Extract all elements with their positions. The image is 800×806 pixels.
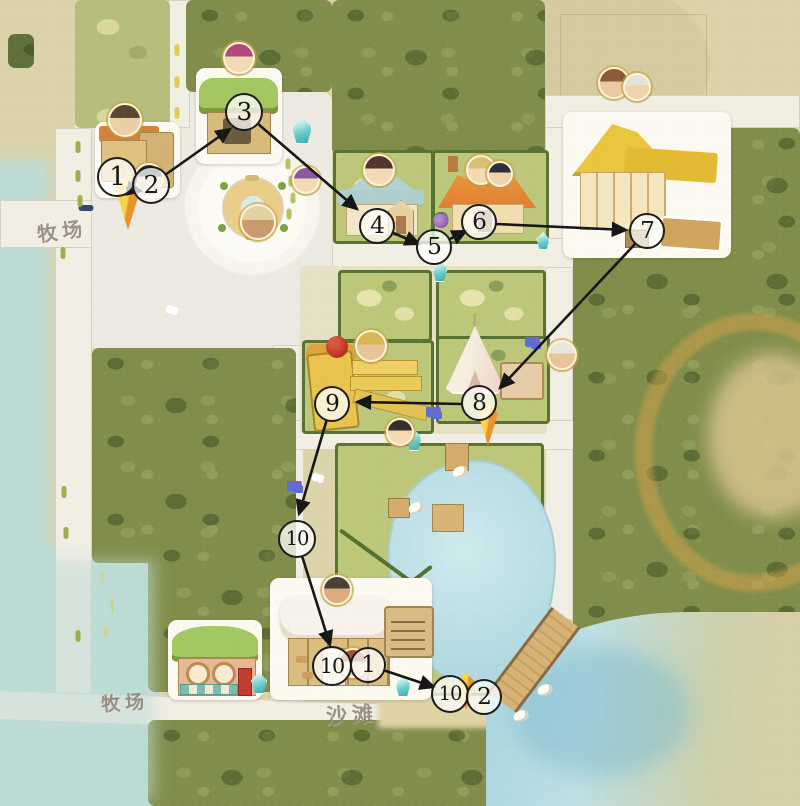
waypoint-10-restaurant[interactable]: 10 [312, 646, 352, 686]
waypoint-3[interactable]: 3 [225, 93, 263, 131]
waypoint-9[interactable]: 9 [314, 386, 350, 422]
waypoint-1-restaurant[interactable]: 1 [350, 647, 386, 683]
waypoint-2-beach[interactable]: 2 [466, 679, 502, 715]
waypoint-10-beach[interactable]: 10 [431, 675, 469, 713]
village-map: 12345678910101102 牧场 牧场 沙滩 [0, 0, 800, 806]
waypoint-10[interactable]: 10 [278, 520, 316, 558]
waypoint-7[interactable]: 7 [629, 213, 665, 249]
waypoint-6[interactable]: 6 [461, 204, 497, 240]
waypoint-layer: 12345678910101102 [0, 0, 800, 806]
waypoint-2[interactable]: 2 [132, 166, 170, 204]
waypoint-4[interactable]: 4 [359, 208, 395, 244]
waypoint-1[interactable]: 1 [97, 157, 137, 197]
waypoint-5[interactable]: 5 [416, 229, 452, 265]
waypoint-8[interactable]: 8 [461, 385, 497, 421]
